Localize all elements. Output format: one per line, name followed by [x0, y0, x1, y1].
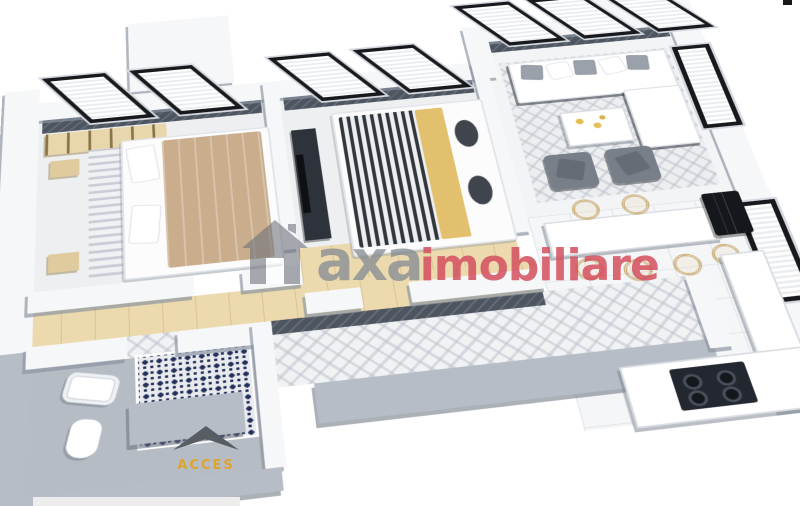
burner-2 [714, 369, 738, 387]
bed-left-blanket [162, 131, 275, 268]
bathroom-sink [60, 372, 121, 406]
burner-4 [720, 385, 745, 403]
coffee-table-decor [571, 113, 613, 135]
entrance-access-label: ACCES [168, 458, 244, 473]
cooktop [669, 361, 759, 411]
burner-1 [681, 373, 705, 391]
nightstand-1 [50, 159, 79, 178]
top-right-mark [783, 0, 792, 5]
nightstand-2 [48, 252, 79, 274]
burner-3 [686, 389, 710, 407]
armchair-1-cushion [556, 158, 586, 180]
bed-left-pillow-2 [128, 205, 161, 245]
striped-rug [88, 147, 123, 278]
sofa-pillow-3 [573, 60, 597, 75]
up-arrow-icon [173, 426, 239, 452]
screenshot-viewport: axa imobiliare ACCES [0, 0, 800, 506]
sofa-pillow-1 [521, 65, 544, 80]
apartment-3d-plan [0, 7, 800, 506]
entrance-access-marker: ACCES [168, 426, 244, 473]
left-outer-wall-lower [0, 352, 30, 506]
bottom-thumbnail-edge [33, 497, 240, 506]
sofa-pillow-5 [626, 55, 650, 70]
